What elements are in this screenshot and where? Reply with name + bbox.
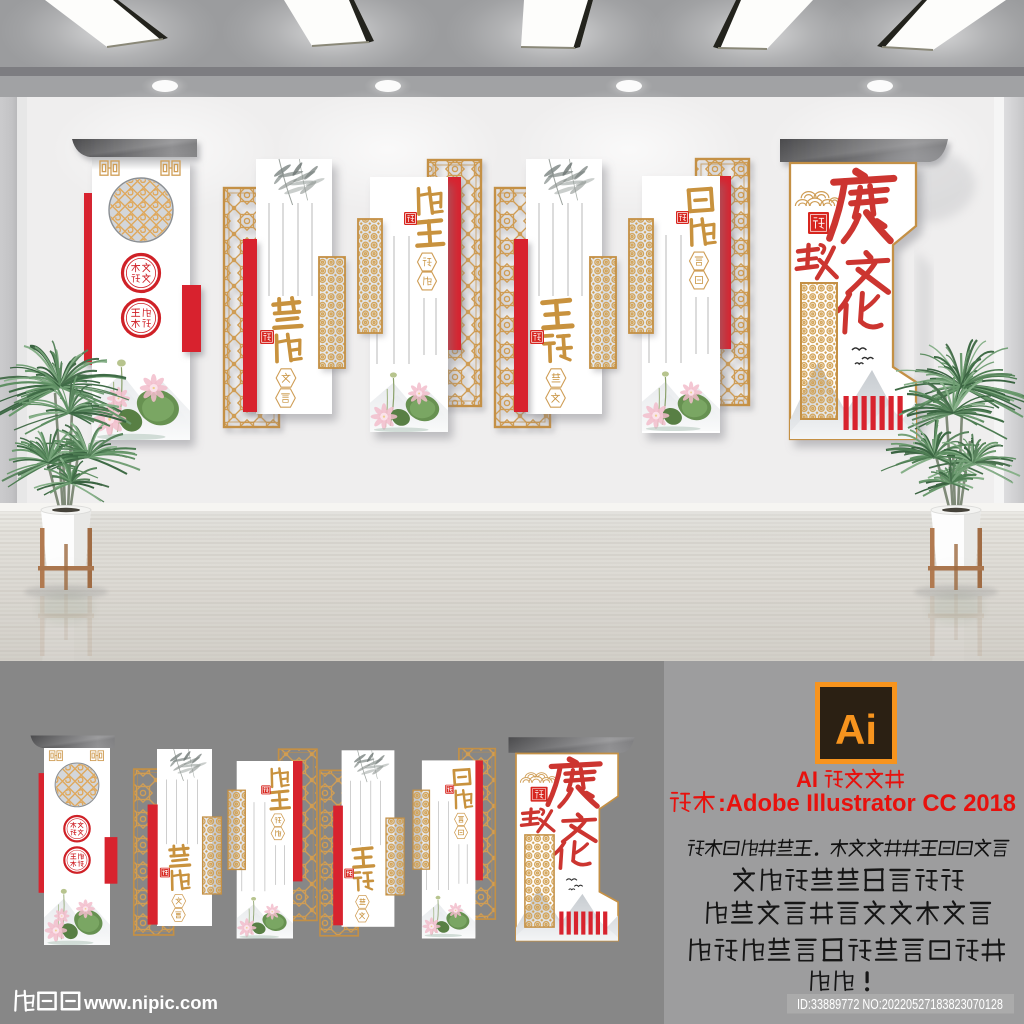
svg-text:Ai: Ai — [835, 706, 877, 753]
svg-text:AI: AI — [796, 767, 818, 792]
svg-text::Adobe Illustrator CC 2018: :Adobe Illustrator CC 2018 — [718, 790, 1016, 817]
svg-text:www.nipic.com: www.nipic.com — [83, 992, 218, 1013]
svg-text:ID:33889772 NO:202205271838230: ID:33889772 NO:20220527183823070128 — [797, 997, 1003, 1013]
